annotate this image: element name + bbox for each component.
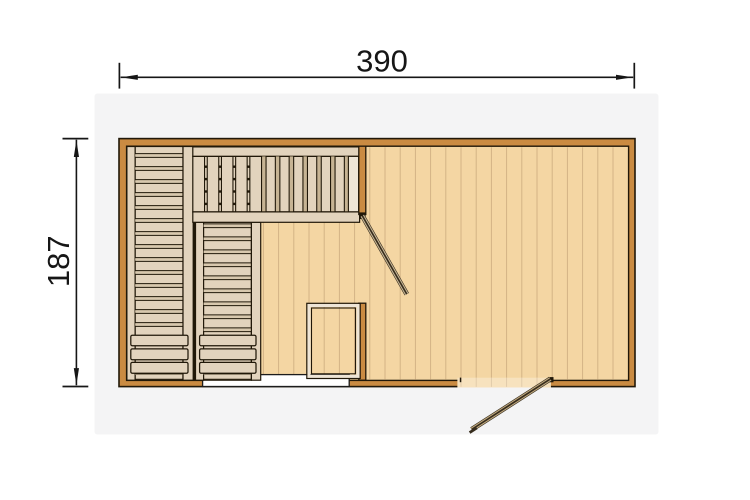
svg-text:390: 390	[356, 44, 408, 79]
svg-text:187: 187	[41, 235, 76, 287]
